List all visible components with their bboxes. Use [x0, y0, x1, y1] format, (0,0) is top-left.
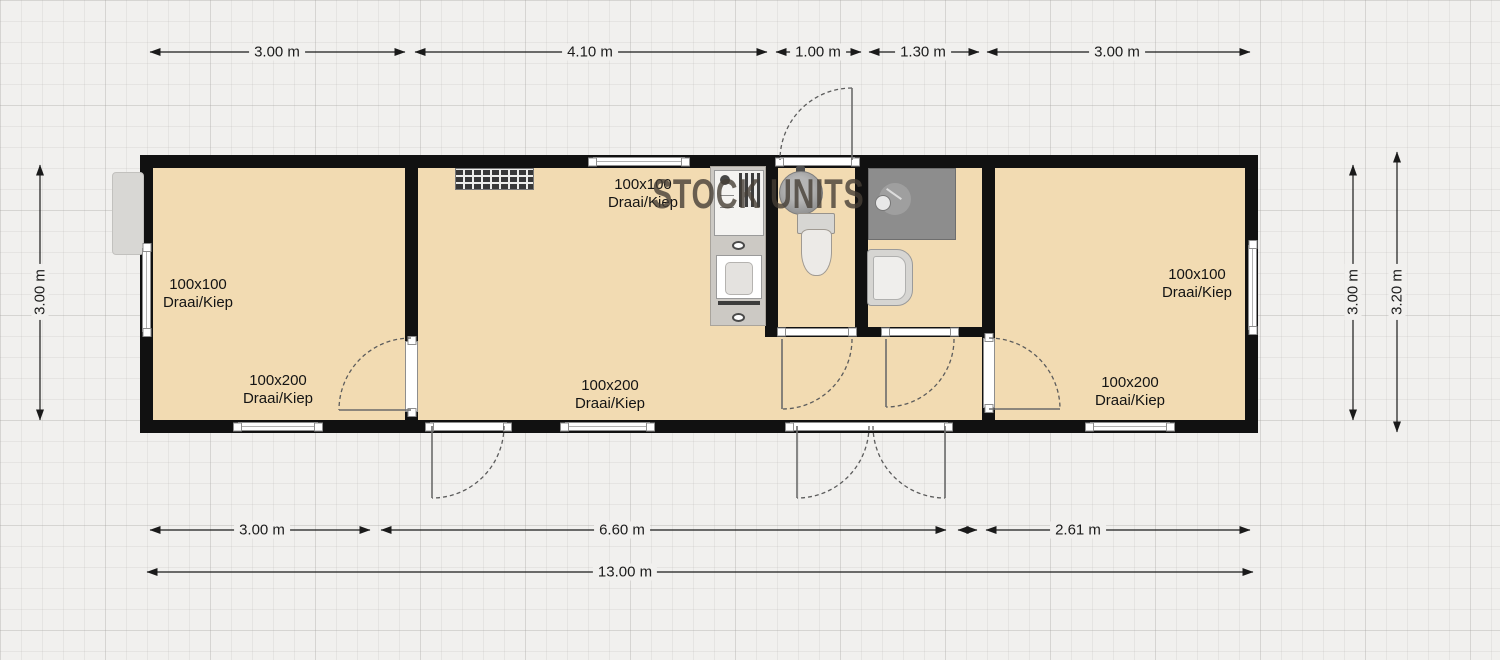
dim-bottom-1: 3.00 m [234, 522, 290, 539]
window-room2-top [593, 157, 685, 166]
window-label-room3: 100x100 Draai/Kiep [1162, 266, 1232, 301]
door-opening-wc-exterior [780, 157, 855, 166]
wall-exterior-top [140, 155, 1258, 168]
window-label-room1: 100x100 Draai/Kiep [163, 276, 233, 311]
dim-overall: 13.00 m [593, 564, 657, 581]
door-opening-room3 [983, 338, 995, 408]
dim-bottom-2: 6.60 m [594, 522, 650, 539]
window-room3-bottom [1090, 422, 1170, 431]
door-label-room1: 100x200 Draai/Kiep [243, 372, 313, 407]
faucet-icon [732, 313, 745, 322]
sink-icon [716, 255, 762, 299]
dim-top-3: 1.00 m [790, 44, 846, 61]
dim-top-4: 1.30 m [895, 44, 951, 61]
washbasin-icon [867, 249, 913, 306]
door-opening-room1 [405, 341, 418, 412]
door-opening-room2-exterior [430, 422, 507, 431]
door-label-room2: 100x200 Draai/Kiep [575, 377, 645, 412]
dim-right-outer: 3.20 m [1389, 264, 1406, 320]
exterior-utility-box [112, 172, 144, 255]
watermark: STOCK UNITS [652, 170, 864, 218]
dim-left: 3.00 m [32, 264, 49, 320]
toilet-bowl-icon [801, 229, 832, 276]
shower-head-icon [875, 195, 891, 211]
shower-cabin-icon [868, 168, 956, 240]
radiator-icon [455, 168, 534, 190]
dim-top-1: 3.00 m [249, 44, 305, 61]
faucet-icon [732, 241, 745, 250]
door-opening-entrance-double [790, 422, 948, 431]
window-room3-right [1248, 245, 1257, 330]
floorplan-canvas: 3.00 m 4.10 m 1.00 m 1.30 m 3.00 m 3.00 … [0, 0, 1500, 660]
dim-top-5: 3.00 m [1089, 44, 1145, 61]
window-room2-bottom [565, 422, 650, 431]
dim-right-inner: 3.00 m [1345, 264, 1362, 320]
window-room1-left [142, 248, 151, 332]
door-opening-wc-hall [782, 328, 852, 336]
door-label-room3: 100x200 Draai/Kiep [1095, 374, 1165, 409]
door-opening-shower-hall [886, 328, 954, 336]
dim-bottom-3: 2.61 m [1050, 522, 1106, 539]
window-room1-bottom [238, 422, 318, 431]
dim-top-2: 4.10 m [562, 44, 618, 61]
